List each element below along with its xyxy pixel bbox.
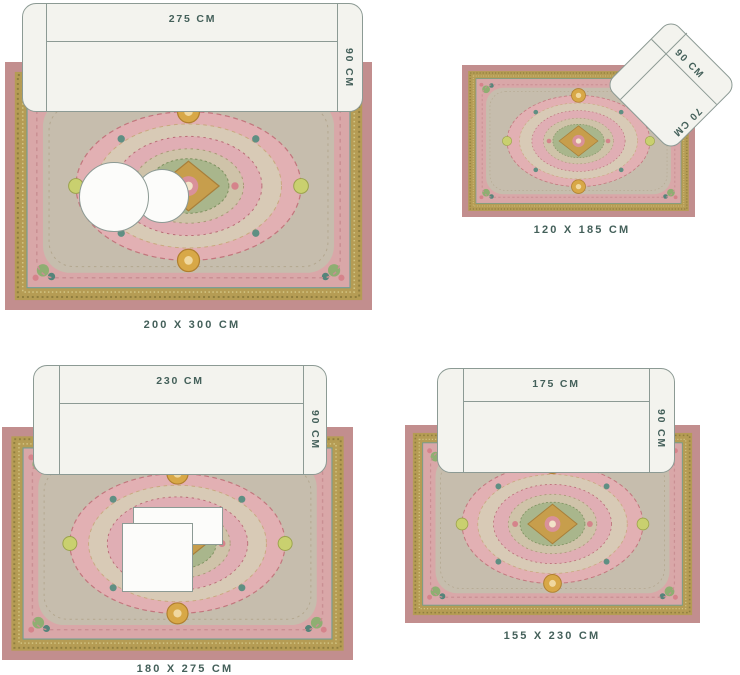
coffee-table-round-large — [79, 162, 149, 232]
rug-size-caption: 120 X 185 CM — [534, 224, 631, 236]
sofa-depth-label: 90 CM — [309, 410, 321, 450]
sofa-width-label: 175 CM — [438, 378, 674, 390]
chair-armrest-line — [651, 39, 717, 105]
coffee-table-square-front — [122, 523, 193, 592]
group-rug-120x185: 90 CM 70 CM 120 X 185 CM — [440, 0, 740, 260]
rug-size-comparison-diagram: { "colors": { "label-text": "#44605a", "… — [0, 0, 740, 675]
group-rug-180x275: 230 CM 90 CM 180 X 275 CM — [0, 360, 380, 675]
sofa-backrest-line — [59, 403, 303, 404]
sofa-175cm: 175 CM 90 CM — [437, 368, 675, 473]
rug-size-caption: 155 X 230 CM — [504, 630, 601, 642]
sofa-230cm: 230 CM 90 CM — [33, 365, 327, 475]
sofa-depth-label: 90 CM — [655, 409, 667, 449]
sofa-width-label: 230 CM — [34, 375, 326, 387]
sofa-275cm: 275 CM 90 CM — [22, 3, 363, 112]
sofa-width-label: 275 CM — [23, 13, 362, 25]
sofa-backrest-line — [46, 41, 337, 42]
rug-size-caption: 180 X 275 CM — [137, 663, 234, 675]
rug-size-caption: 200 X 300 CM — [144, 319, 241, 331]
group-rug-200x300: 275 CM 90 CM 200 X 300 CM — [0, 0, 380, 340]
sofa-backrest-line — [463, 401, 649, 402]
sofa-depth-label: 90 CM — [343, 48, 355, 88]
group-rug-155x230: 175 CM 90 CM 155 X 230 CM — [390, 360, 740, 675]
